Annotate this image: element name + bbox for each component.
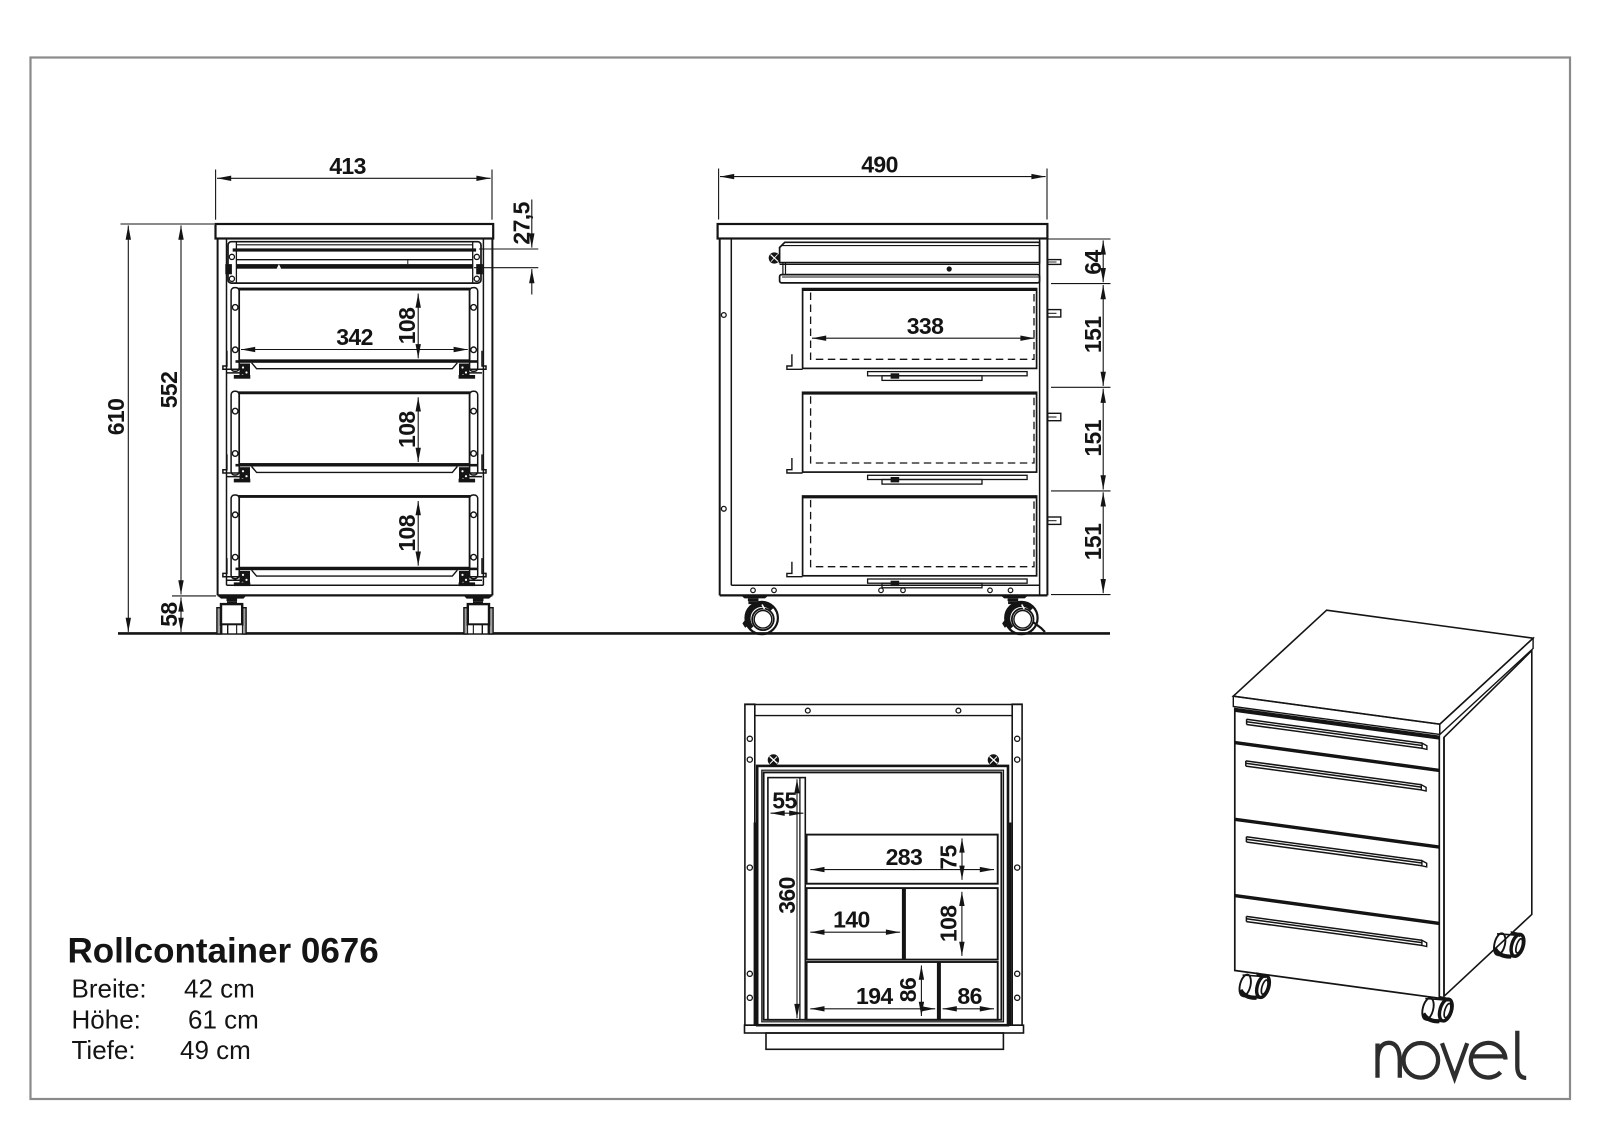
svg-text:151: 151 (1080, 419, 1106, 456)
svg-text:64: 64 (1080, 250, 1106, 275)
svg-text:27,5: 27,5 (509, 201, 535, 244)
svg-text:42 cm: 42 cm (184, 974, 255, 1004)
svg-text:49 cm: 49 cm (180, 1035, 251, 1065)
svg-text:151: 151 (1080, 523, 1106, 560)
svg-text:58: 58 (156, 602, 182, 627)
svg-text:338: 338 (907, 313, 944, 339)
svg-text:283: 283 (886, 844, 923, 870)
svg-text:151: 151 (1080, 316, 1106, 353)
svg-text:61 cm: 61 cm (188, 1004, 259, 1034)
svg-text:Höhe:: Höhe: (72, 1004, 141, 1034)
svg-text:108: 108 (394, 307, 420, 344)
svg-text:610: 610 (103, 399, 129, 436)
svg-text:55: 55 (772, 788, 797, 814)
svg-text:Breite:: Breite: (72, 974, 147, 1004)
svg-text:75: 75 (936, 845, 962, 870)
svg-text:108: 108 (935, 905, 961, 942)
svg-text:490: 490 (861, 151, 898, 177)
svg-text:Rollcontainer 0676: Rollcontainer 0676 (68, 932, 379, 971)
svg-text:108: 108 (394, 411, 420, 448)
svg-text:552: 552 (156, 372, 182, 409)
svg-text:342: 342 (336, 324, 373, 350)
svg-text:108: 108 (394, 514, 420, 551)
svg-text:140: 140 (833, 907, 870, 933)
svg-text:86: 86 (957, 983, 981, 1009)
svg-text:360: 360 (774, 877, 800, 914)
svg-text:413: 413 (329, 153, 366, 179)
svg-text:194: 194 (856, 983, 893, 1009)
svg-text:Tiefe:: Tiefe: (72, 1035, 136, 1065)
svg-text:86: 86 (895, 978, 921, 1002)
